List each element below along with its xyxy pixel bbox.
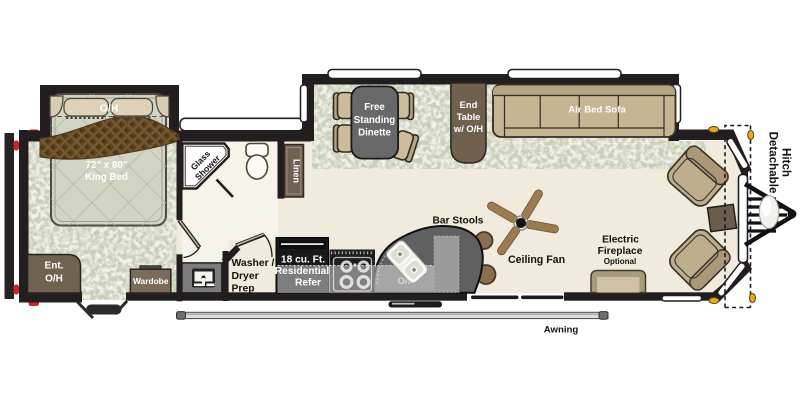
svg-text:King Bed: King Bed: [85, 172, 128, 183]
svg-text:Free: Free: [364, 102, 385, 113]
svg-text:Air Bed Sofa: Air Bed Sofa: [568, 105, 626, 116]
svg-text:Bar Stools: Bar Stools: [433, 216, 484, 227]
svg-text:Optional: Optional: [604, 257, 636, 266]
svg-text:w/ O/H: w/ O/H: [453, 123, 483, 134]
svg-text:72" x 80": 72" x 80": [86, 160, 128, 171]
svg-text:Fireplace: Fireplace: [598, 246, 643, 257]
svg-text:O/H: O/H: [100, 103, 119, 115]
svg-text:Dinette: Dinette: [358, 128, 391, 139]
svg-text:Standing: Standing: [354, 115, 396, 126]
svg-text:Washer /: Washer /: [232, 258, 275, 269]
svg-text:Dryer: Dryer: [232, 271, 259, 282]
svg-text:Prep: Prep: [232, 284, 255, 295]
svg-text:Table: Table: [457, 111, 481, 122]
svg-text:O/H: O/H: [45, 274, 63, 285]
svg-text:Electric: Electric: [602, 235, 639, 246]
svg-text:Ent.: Ent.: [45, 261, 64, 272]
svg-text:Wardobe: Wardobe: [133, 276, 169, 286]
svg-text:Refer: Refer: [295, 278, 321, 289]
svg-text:Hitch: Hitch: [780, 148, 793, 177]
svg-text:18 cu. Ft.: 18 cu. Ft.: [281, 255, 325, 266]
svg-text:Detachable: Detachable: [767, 132, 780, 194]
svg-text:Linen: Linen: [292, 159, 302, 183]
svg-text:Awning: Awning: [544, 325, 579, 336]
svg-text:Ceiling Fan: Ceiling Fan: [508, 254, 565, 266]
svg-text:Residential: Residential: [275, 266, 330, 277]
svg-text:End: End: [460, 99, 478, 110]
